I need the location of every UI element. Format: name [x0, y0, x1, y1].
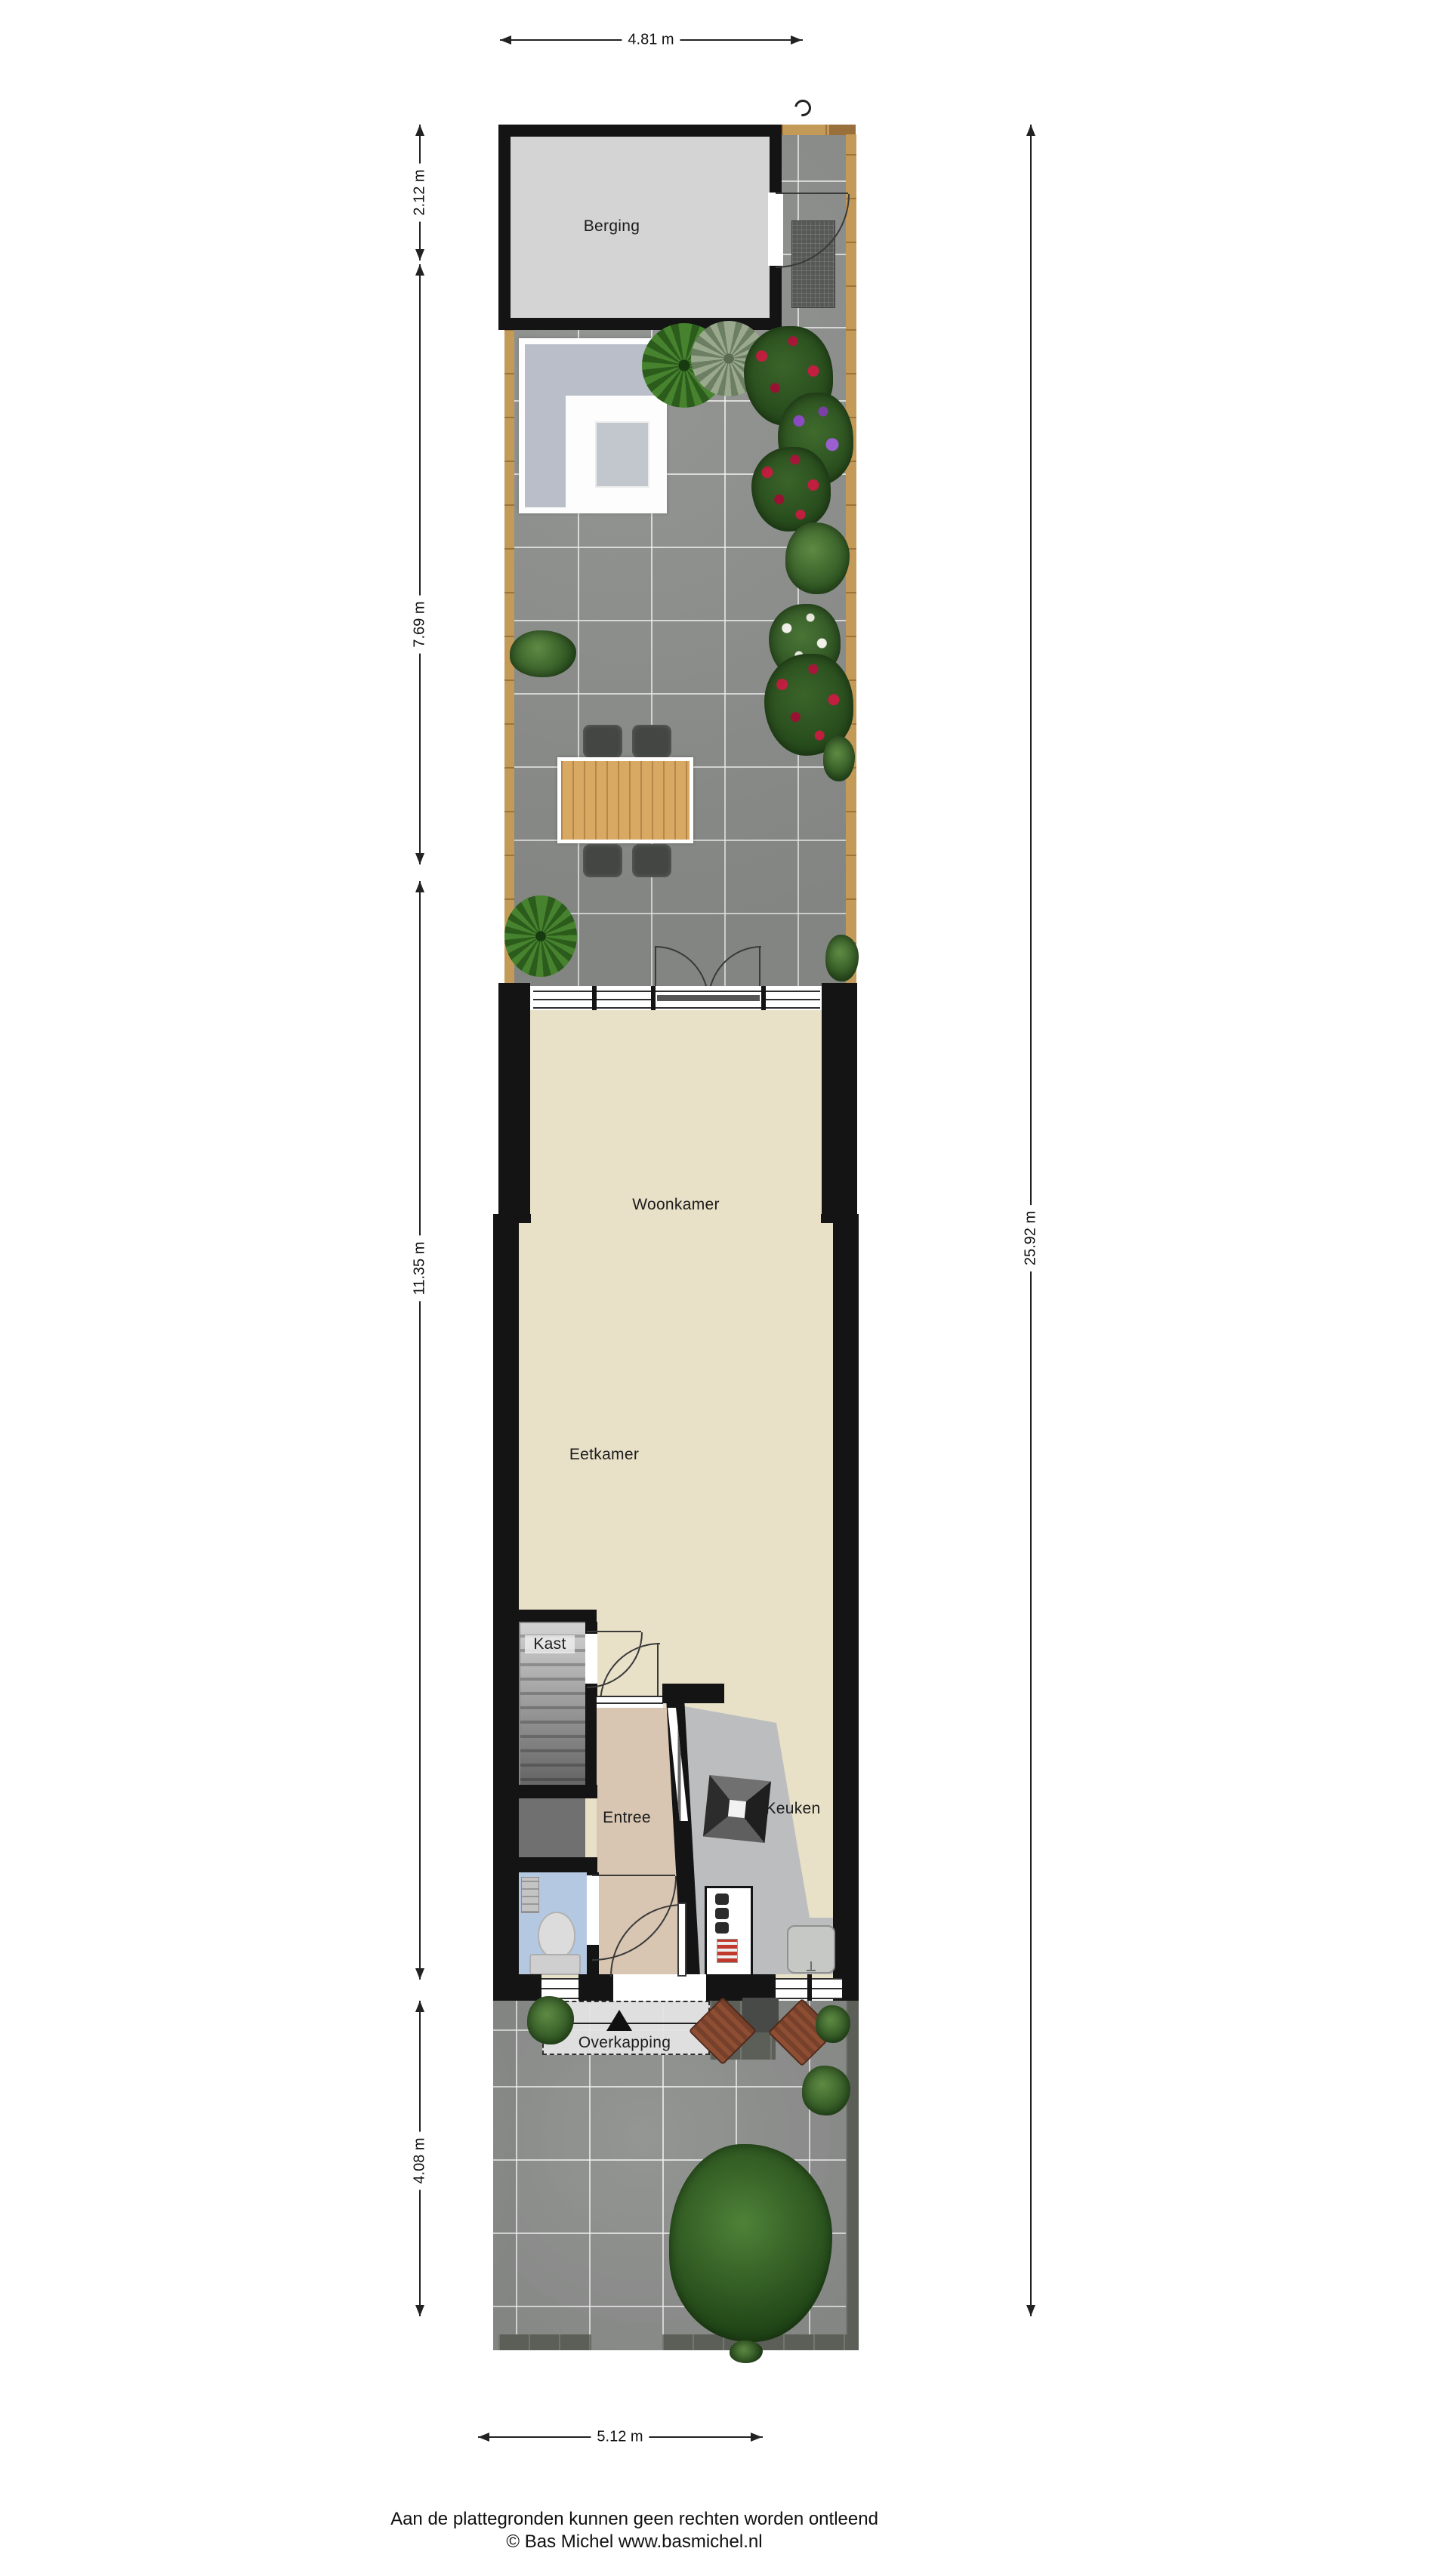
front-garden-edge-bottom-left	[498, 2334, 591, 2350]
kast-wall-top	[512, 1610, 597, 1622]
kast-wall-bottom	[493, 1785, 597, 1798]
arrowhead	[478, 2433, 489, 2442]
appliance-knob	[715, 1893, 729, 1905]
kitchen-window-mullion	[807, 1974, 812, 2001]
meter-cupboard	[705, 1886, 753, 1977]
flower-bush-red-2	[751, 447, 831, 532]
storage-niche	[519, 1798, 585, 1857]
faucet-icon	[810, 1961, 812, 1971]
garden-chair	[632, 844, 671, 877]
room-label-woonkamer: Woonkamer	[600, 1196, 751, 1214]
toilet-bowl	[538, 1912, 575, 1958]
arrowhead	[1026, 125, 1035, 136]
cooktop-center	[728, 1800, 746, 1818]
arrowhead	[415, 264, 424, 276]
kast-wall-right-lower	[585, 1684, 597, 1785]
rear-mullion	[761, 986, 766, 1010]
wall-right-lower	[833, 1223, 859, 2001]
arrowhead	[415, 2305, 424, 2316]
garden-bush-left	[510, 630, 576, 677]
floorplan-canvas: Berging Woonkamer Eetkamer	[0, 0, 1450, 2576]
appliance-knob	[715, 1908, 729, 1919]
room-label-kast: Kast	[525, 1635, 575, 1653]
boiler-unit	[717, 1939, 738, 1963]
arrowhead	[751, 2433, 762, 2442]
woonkamer-floor	[530, 1010, 822, 1225]
dim-label-top-width: 4.81 m	[622, 31, 680, 50]
garden-table	[557, 757, 693, 843]
front-garden-edge-right	[846, 2001, 859, 2350]
front-bush-mid-right	[802, 2066, 850, 2115]
front-door-opening	[613, 1974, 706, 2001]
toilet-wall-top	[493, 1857, 597, 1872]
disclaimer-text: Aan de plattegronden kunnen geen rechten…	[347, 2508, 921, 2553]
clothesline-hook-icon	[791, 97, 815, 120]
appliance-knob	[715, 1922, 729, 1934]
dim-label-bottom-width: 5.12 m	[591, 2428, 649, 2447]
rear-window-1	[533, 991, 592, 1009]
dim-label-back-garden-depth: 7.69 m	[411, 595, 430, 653]
disclaimer-line1: Aan de plattegronden kunnen geen rechten…	[347, 2508, 921, 2531]
rear-window-2	[597, 991, 651, 1009]
room-label-berging: Berging	[559, 217, 665, 236]
wall-right-upper	[822, 983, 857, 1225]
toilet-tank	[529, 1954, 581, 1975]
arrowhead	[415, 853, 424, 864]
garden-chair	[632, 725, 671, 758]
arrowhead	[415, 1968, 424, 1980]
dim-label-house-depth: 11.35 m	[411, 1236, 430, 1302]
front-wall-4	[842, 1974, 859, 2001]
dim-label-front-garden-depth: 4.08 m	[411, 2131, 430, 2189]
entrance-arrow-icon	[606, 2010, 632, 2031]
front-door-leaf	[677, 1903, 686, 1977]
front-wall-2	[578, 1974, 613, 2001]
garden-chair	[583, 725, 622, 758]
garden-bush-near-doors	[825, 935, 859, 981]
front-bush-right	[816, 2005, 850, 2043]
garden-bush-right	[785, 522, 850, 594]
kitchen-sink	[787, 1925, 835, 1974]
garden-structure-leg	[525, 396, 566, 507]
dim-line-house-depth	[419, 881, 421, 1980]
dim-label-berging-depth: 2.12 m	[411, 163, 430, 221]
garden-slab	[595, 421, 649, 488]
entree-door-leaf	[657, 1643, 659, 1702]
arrowhead	[500, 35, 511, 45]
front-bush-under-canopy	[527, 1996, 574, 2044]
palm-plant-lower	[504, 895, 577, 977]
arrowhead	[415, 2001, 424, 2012]
arrowhead	[415, 125, 424, 136]
wall-left-upper	[498, 983, 530, 1225]
patio-door-threshold-strip	[657, 995, 760, 1001]
arrowhead	[415, 249, 424, 260]
front-wall-1	[493, 1974, 541, 2001]
room-label-keuken: Keuken	[748, 1800, 838, 1818]
copyright-line: © Bas Michel www.basmichel.nl	[347, 2531, 921, 2553]
front-garden-tuft	[730, 2340, 763, 2363]
garden-structure-bar	[525, 344, 661, 396]
arrowhead	[415, 881, 424, 892]
room-label-eetkamer: Eetkamer	[536, 1446, 672, 1464]
dim-line-back-garden-depth	[419, 264, 421, 864]
toilet-radiator	[521, 1877, 539, 1913]
front-garden-large-bush	[669, 2144, 832, 2342]
arrowhead	[791, 35, 802, 45]
garden-wood-edge-top-dark	[829, 125, 856, 135]
dim-label-total-depth: 25.92 m	[1022, 1205, 1041, 1271]
rear-window-3	[766, 991, 820, 1009]
rear-mullion	[592, 986, 597, 1010]
arrowhead	[1026, 2305, 1035, 2316]
garden-chair	[583, 844, 622, 877]
garden-bush-right-small	[823, 736, 855, 781]
front-wall-3	[706, 1974, 776, 2001]
